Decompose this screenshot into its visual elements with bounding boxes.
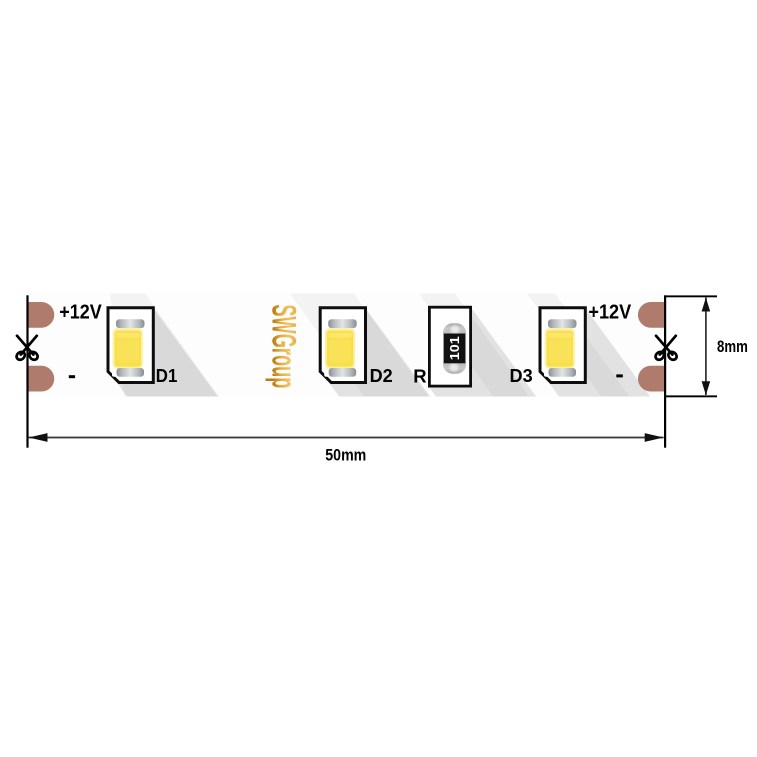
svg-text:101: 101 xyxy=(448,336,462,360)
svg-text:SWGroup: SWGroup xyxy=(264,304,302,388)
svg-text:50mm: 50mm xyxy=(325,446,366,465)
svg-text:+12V: +12V xyxy=(59,301,102,323)
svg-text:+12V: +12V xyxy=(588,301,631,323)
svg-text:8mm: 8mm xyxy=(717,337,748,356)
svg-text:D3: D3 xyxy=(510,366,533,386)
svg-text:R: R xyxy=(413,365,426,386)
svg-text:D1: D1 xyxy=(156,366,178,386)
svg-text:D2: D2 xyxy=(370,366,393,386)
